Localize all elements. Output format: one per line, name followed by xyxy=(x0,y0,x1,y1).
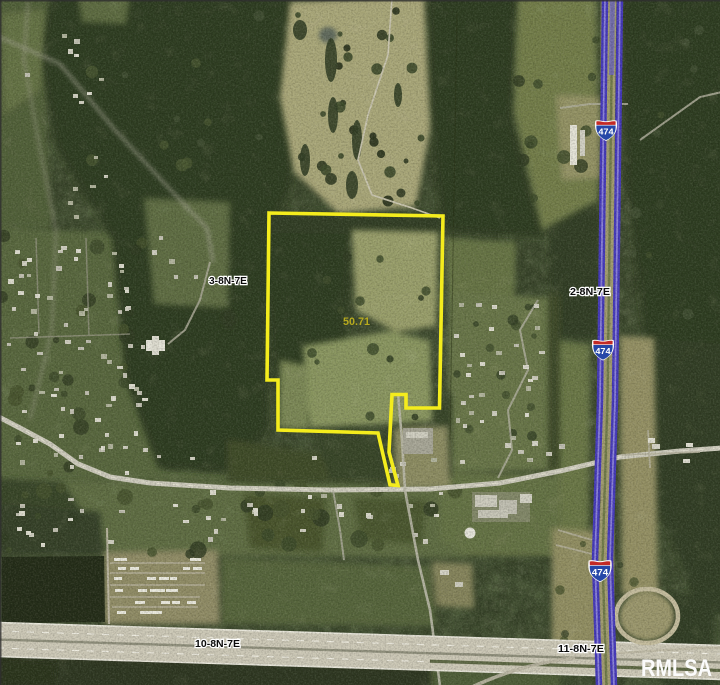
svg-text:50.71: 50.71 xyxy=(343,316,370,328)
svg-text:2-8N-7E: 2-8N-7E xyxy=(570,286,610,298)
svg-text:3-8N-7E: 3-8N-7E xyxy=(209,275,247,287)
svg-text:10-8N-7E: 10-8N-7E xyxy=(195,638,240,650)
svg-text:11-8N-7E: 11-8N-7E xyxy=(558,643,604,655)
svg-text:RMLSA: RMLSA xyxy=(641,655,712,682)
